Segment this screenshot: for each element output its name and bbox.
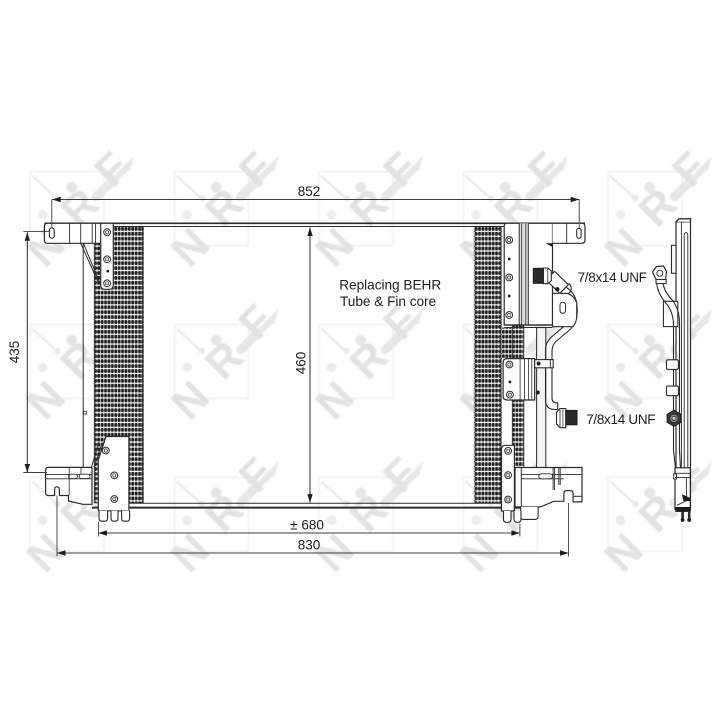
svg-text:Tube & Fin core: Tube & Fin core (340, 294, 436, 309)
svg-text:830: 830 (298, 538, 321, 553)
svg-text:460: 460 (294, 352, 309, 375)
svg-text:7/8x14 UNF: 7/8x14 UNF (586, 412, 655, 427)
svg-text:Replacing BEHR: Replacing BEHR (339, 278, 441, 293)
svg-text:7/8x14 UNF: 7/8x14 UNF (578, 270, 647, 285)
svg-text:852: 852 (298, 184, 321, 199)
svg-text:435: 435 (7, 341, 22, 364)
svg-text:± 680: ± 680 (290, 518, 324, 533)
